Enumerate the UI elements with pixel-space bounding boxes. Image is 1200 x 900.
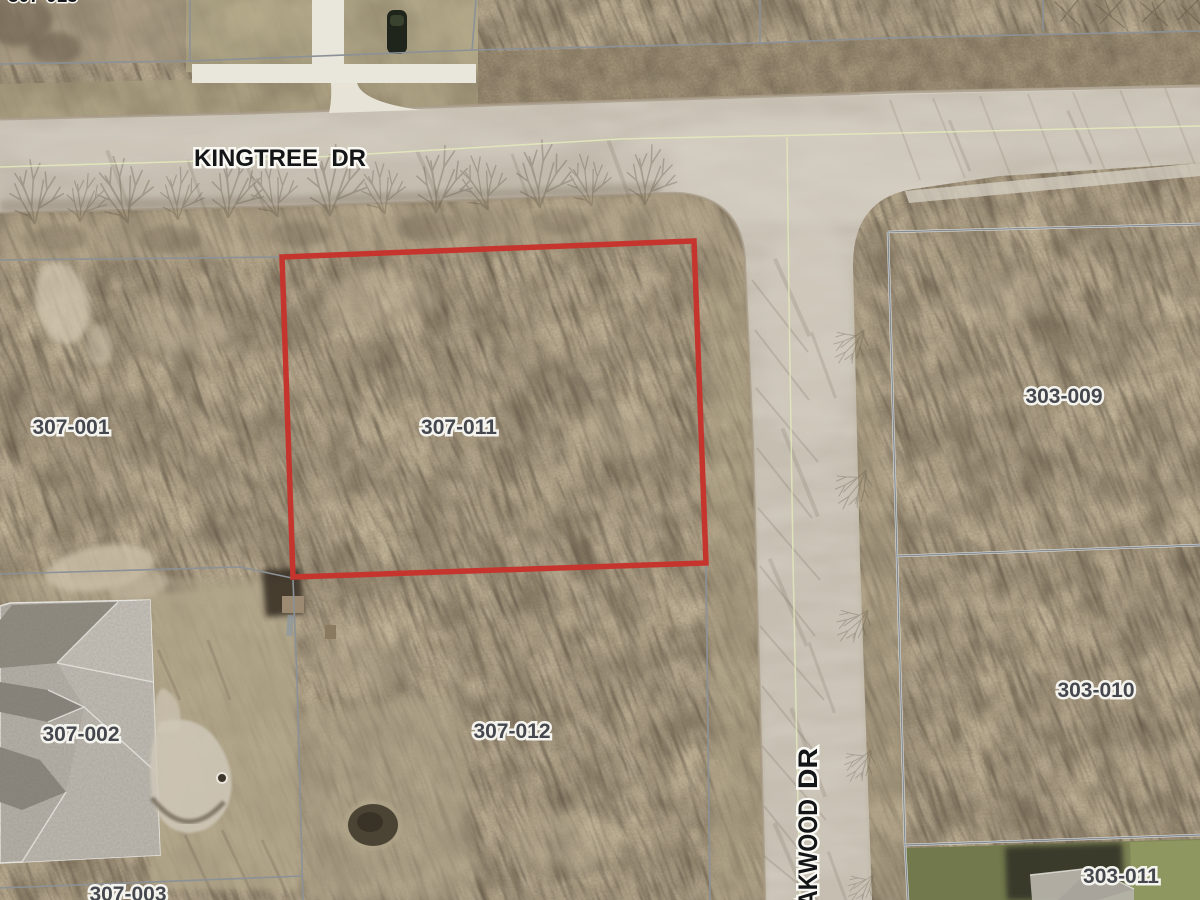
svg-text:KINGTREE DR: KINGTREE DR <box>194 145 366 172</box>
svg-text:307-002: 307-002 <box>42 723 119 746</box>
svg-text:303-009: 303-009 <box>1025 385 1102 408</box>
svg-text:307-011: 307-011 <box>421 416 497 439</box>
svg-text:303-011: 303-011 <box>1083 865 1159 888</box>
svg-text:307-001: 307-001 <box>32 416 109 439</box>
svg-text:307-013: 307-013 <box>8 0 78 7</box>
svg-text:307-012: 307-012 <box>473 720 550 743</box>
svg-text:DR: DR <box>793 748 823 789</box>
svg-text:307-003: 307-003 <box>89 883 166 900</box>
svg-text:AKWOOD: AKWOOD <box>793 799 823 900</box>
svg-text:303-010: 303-010 <box>1057 679 1134 702</box>
